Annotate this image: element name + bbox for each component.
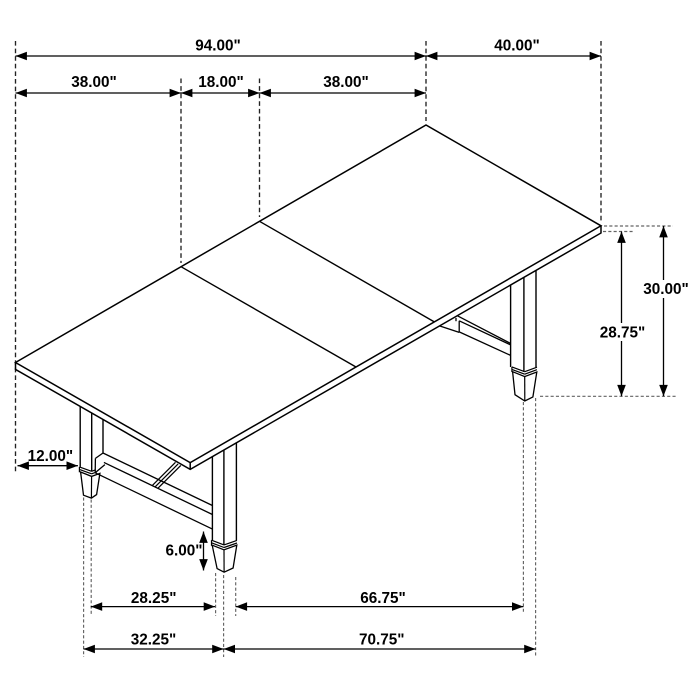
- svg-text:32.25": 32.25": [131, 631, 177, 648]
- svg-text:40.00": 40.00": [494, 38, 540, 55]
- svg-text:28.25": 28.25": [131, 590, 177, 607]
- svg-text:94.00": 94.00": [195, 38, 241, 55]
- svg-text:6.00": 6.00": [165, 543, 202, 560]
- svg-text:38.00": 38.00": [71, 74, 117, 91]
- svg-text:30.00": 30.00": [643, 281, 689, 298]
- svg-text:38.00": 38.00": [323, 74, 369, 91]
- svg-text:70.75": 70.75": [359, 631, 405, 648]
- svg-text:66.75": 66.75": [360, 590, 406, 607]
- svg-text:28.75": 28.75": [600, 325, 646, 342]
- svg-text:18.00": 18.00": [198, 74, 244, 91]
- svg-text:12.00": 12.00": [28, 448, 74, 465]
